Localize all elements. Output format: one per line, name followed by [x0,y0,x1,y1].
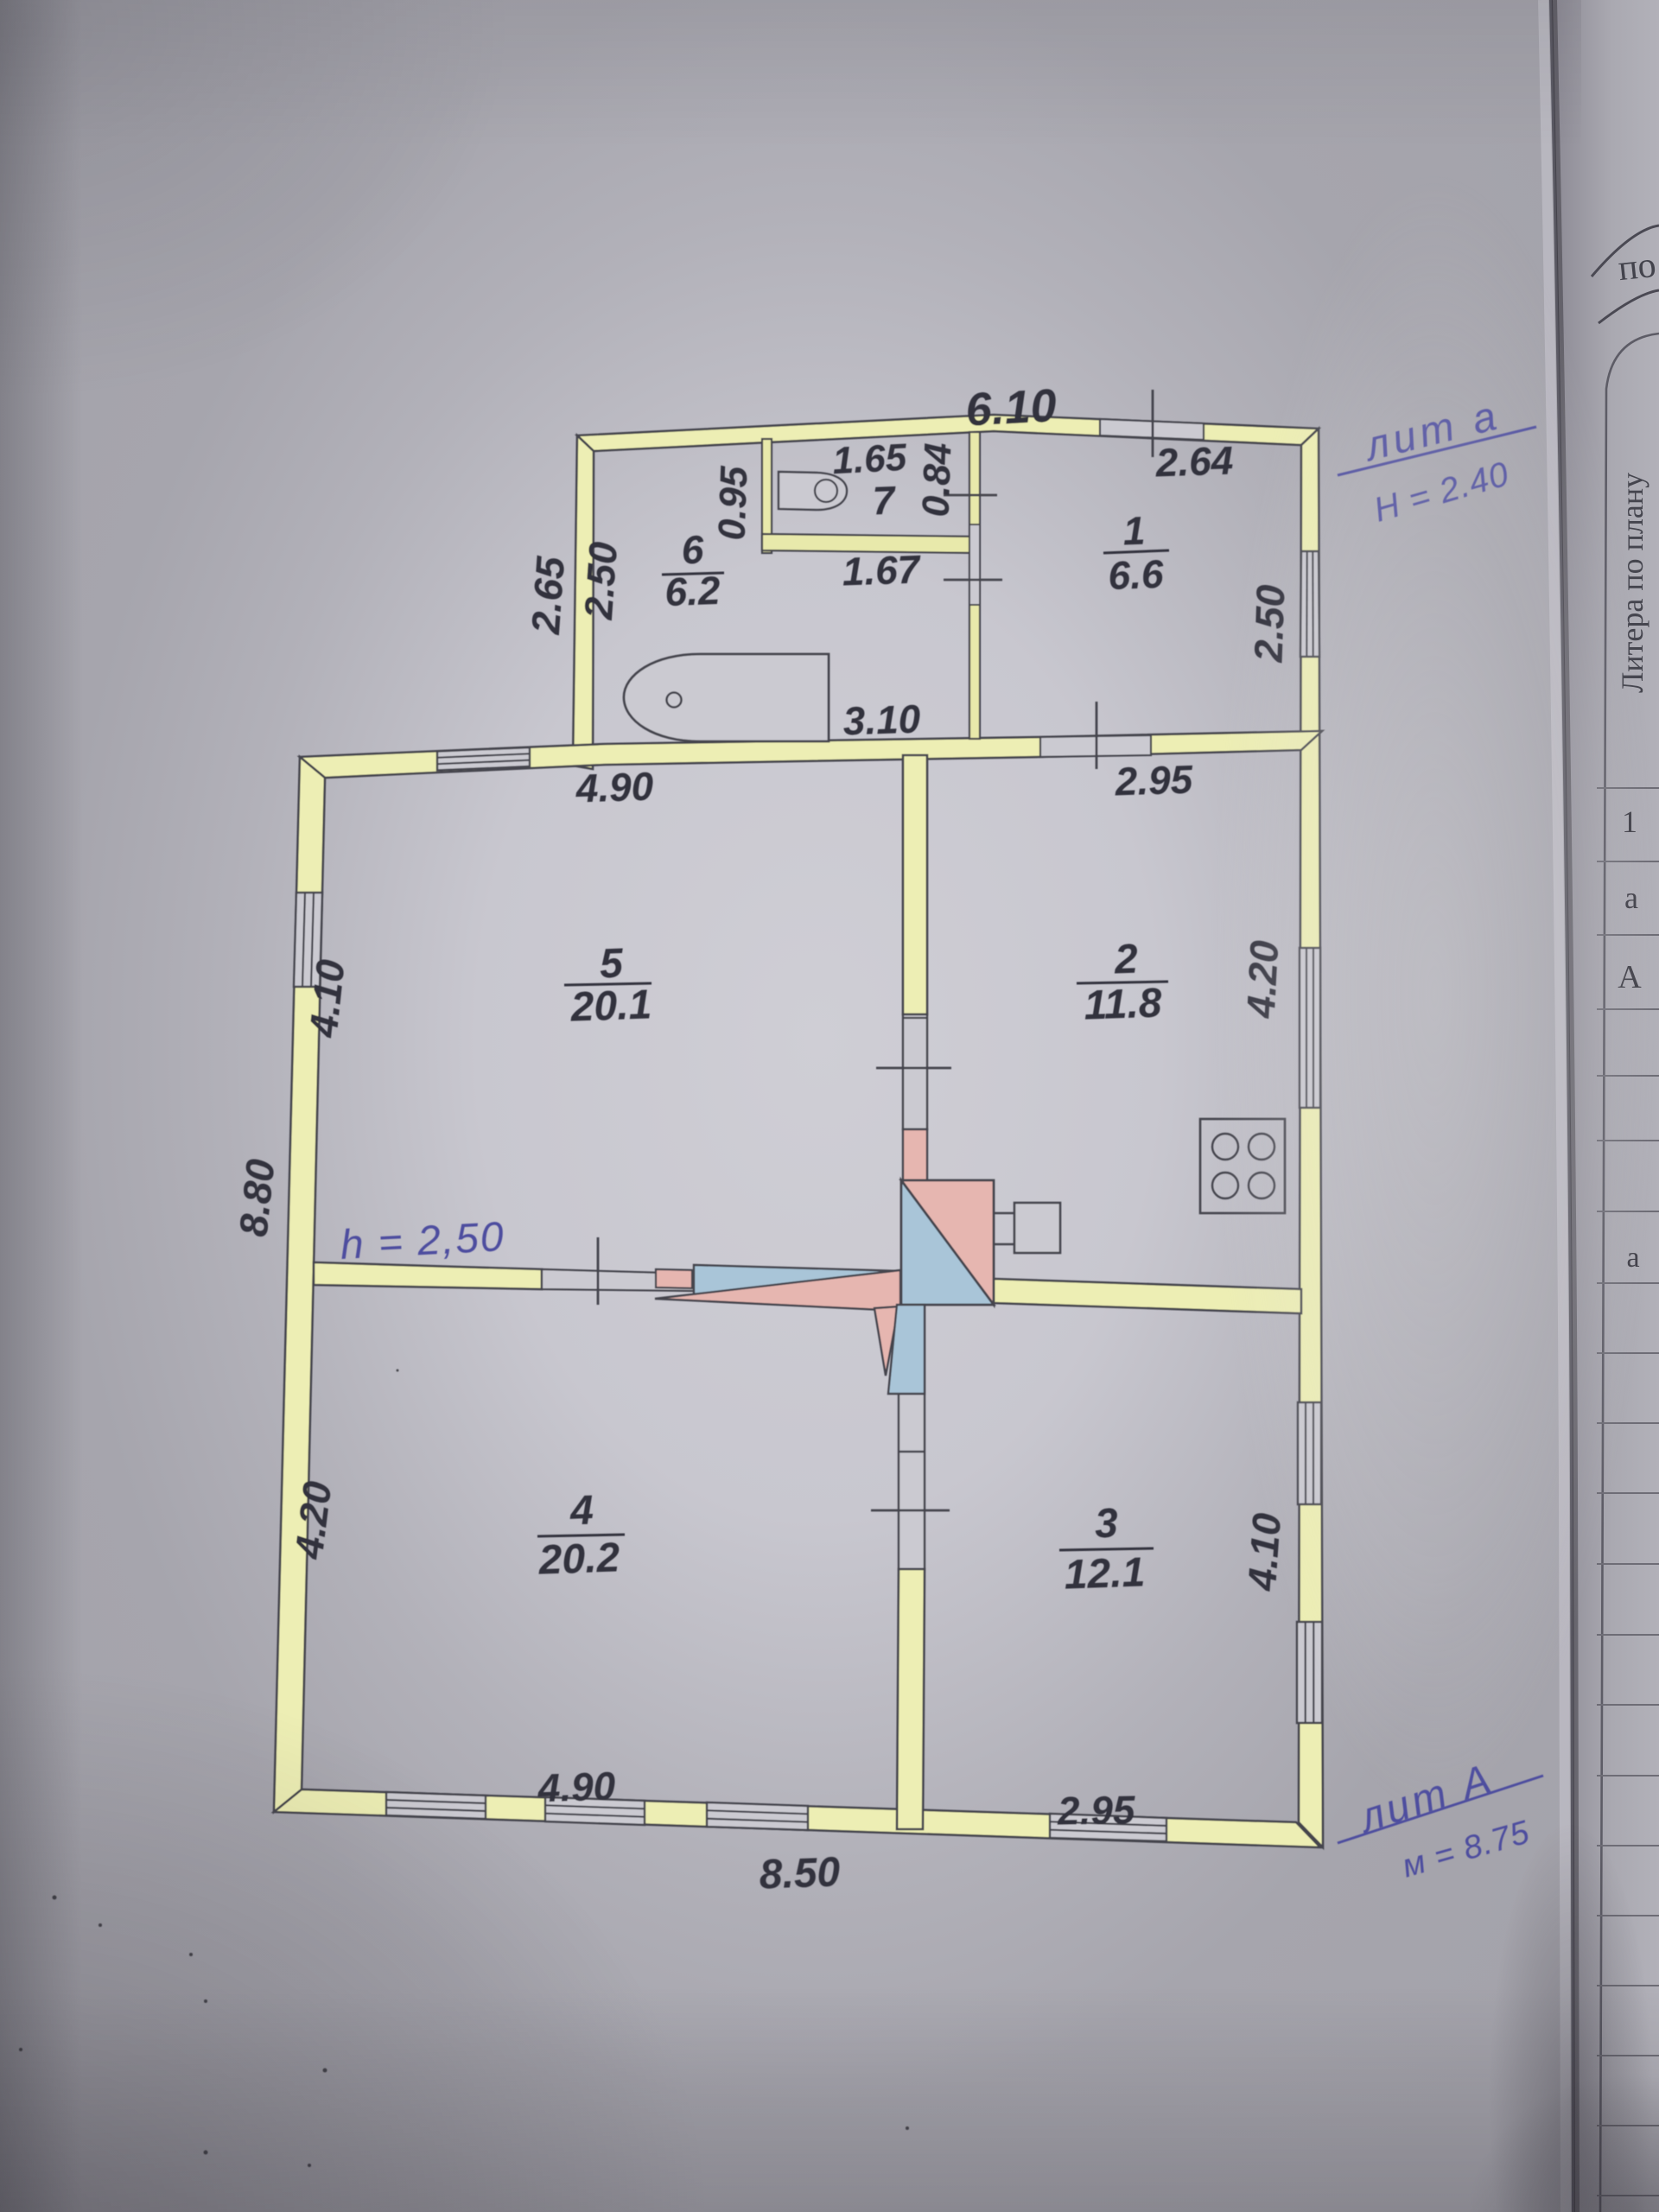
svg-text:11.8: 11.8 [1084,980,1163,1028]
svg-text:1.65: 1.65 [831,436,908,482]
svg-text:0.95: 0.95 [711,465,756,541]
svg-text:6.6: 6.6 [1108,551,1165,598]
svg-text:по: по [1617,245,1658,289]
svg-text:6.10: 6.10 [964,379,1058,435]
svg-text:8.50: 8.50 [759,1849,842,1897]
svg-text:2.50: 2.50 [575,540,626,621]
svg-text:4: 4 [569,1488,594,1535]
svg-text:1.67: 1.67 [842,546,923,594]
svg-text:7: 7 [872,477,898,523]
svg-text:3: 3 [1094,1501,1119,1548]
svg-text:12.1: 12.1 [1064,1549,1146,1598]
svg-text:20.2: 20.2 [537,1535,621,1583]
svg-text:4.90: 4.90 [537,1763,617,1810]
svg-text:6: 6 [681,527,705,573]
svg-text:2.65: 2.65 [523,554,573,636]
svg-text:4.20: 4.20 [286,1478,340,1562]
svg-text:8.80: 8.80 [231,1157,283,1239]
svg-text:4.90: 4.90 [575,763,655,810]
svg-text:2.64: 2.64 [1154,437,1234,485]
svg-text:0.84: 0.84 [915,442,960,518]
svg-text:5: 5 [599,941,625,988]
svg-text:1: 1 [1122,508,1146,554]
svg-text:6.2: 6.2 [664,568,721,614]
svg-text:4.10: 4.10 [300,957,353,1040]
svg-text:3.10: 3.10 [842,696,922,743]
svg-text:2: 2 [1113,937,1139,983]
svg-text:20.1: 20.1 [569,982,652,1030]
svg-text:2.95: 2.95 [1114,756,1195,804]
svg-text:h = 2,50: h = 2,50 [340,1214,506,1268]
svg-text:2.95: 2.95 [1057,1787,1137,1834]
